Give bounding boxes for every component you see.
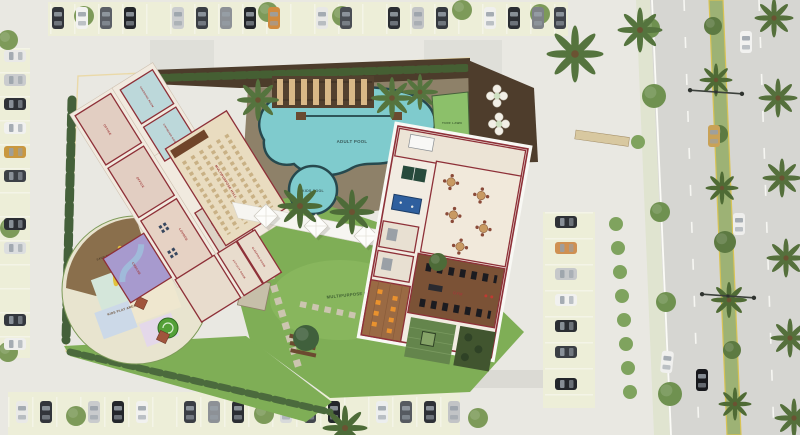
parked-car bbox=[76, 7, 88, 29]
palm-tree-icon bbox=[711, 282, 747, 318]
shrub-icon bbox=[631, 135, 645, 149]
tree-icon bbox=[658, 382, 682, 406]
shrub-icon bbox=[613, 265, 627, 279]
parked-car bbox=[4, 98, 26, 110]
parked-car bbox=[136, 401, 148, 423]
parked-car bbox=[124, 7, 136, 29]
parked-car bbox=[4, 314, 26, 326]
site-master-plan: MULTIPURPOSE LAWN ADULT POOL KIDS POOL T… bbox=[0, 0, 800, 435]
pergola bbox=[272, 76, 374, 108]
shrub-icon bbox=[623, 385, 637, 399]
parked-car bbox=[508, 7, 520, 29]
parked-car bbox=[555, 242, 577, 254]
parked-car bbox=[184, 401, 196, 423]
fixture bbox=[386, 228, 398, 242]
palm-tree-icon bbox=[719, 388, 752, 421]
tree-icon bbox=[723, 341, 741, 359]
palm-tree-icon bbox=[330, 190, 375, 235]
shrub-icon bbox=[611, 241, 625, 255]
parked-car bbox=[532, 7, 544, 29]
tree-icon bbox=[642, 84, 666, 108]
tree-icon bbox=[66, 406, 86, 426]
parked-car bbox=[4, 170, 26, 182]
palm-tree-icon bbox=[755, 0, 794, 38]
parked-car bbox=[16, 401, 28, 423]
tree-icon bbox=[452, 0, 472, 20]
parked-car bbox=[244, 7, 256, 29]
palm-tree-icon bbox=[371, 77, 413, 119]
parked-car bbox=[232, 401, 244, 423]
parked-car bbox=[340, 7, 352, 29]
parked-car bbox=[316, 7, 328, 29]
parked-car bbox=[208, 401, 220, 423]
parked-car bbox=[555, 320, 577, 332]
shrub-icon bbox=[619, 337, 633, 351]
parked-car bbox=[555, 378, 577, 390]
road-car bbox=[696, 369, 708, 391]
palm-tree-icon bbox=[547, 25, 604, 82]
parked-car bbox=[4, 122, 26, 134]
skylight bbox=[420, 331, 435, 346]
parked-car bbox=[555, 294, 577, 306]
tree-icon bbox=[714, 231, 736, 253]
parked-car bbox=[400, 401, 412, 423]
palm-tree-icon bbox=[278, 184, 323, 229]
parked-car bbox=[412, 7, 424, 29]
parked-car bbox=[448, 401, 460, 423]
palm-tree-icon bbox=[763, 159, 800, 198]
parked-car bbox=[555, 346, 577, 358]
palm-tree-icon bbox=[706, 172, 739, 205]
parked-car bbox=[220, 7, 232, 29]
parking-west bbox=[0, 30, 30, 362]
parked-car bbox=[376, 401, 388, 423]
utility-room bbox=[379, 221, 419, 253]
parked-car bbox=[268, 7, 280, 29]
parked-car bbox=[52, 7, 64, 29]
shrub-icon bbox=[609, 217, 623, 231]
parked-car bbox=[554, 7, 566, 29]
palm-tree-icon bbox=[759, 79, 798, 118]
tree-icon bbox=[429, 253, 447, 271]
parked-car bbox=[88, 401, 100, 423]
parked-car bbox=[424, 401, 436, 423]
parked-car bbox=[172, 7, 184, 29]
parked-car bbox=[4, 218, 26, 230]
cafe-area bbox=[420, 161, 521, 267]
parked-car bbox=[555, 216, 577, 228]
tree-icon bbox=[650, 202, 670, 222]
tree-icon bbox=[704, 17, 722, 35]
parked-car bbox=[436, 7, 448, 29]
parked-car bbox=[555, 268, 577, 280]
parked-car bbox=[4, 338, 26, 350]
pool-planter bbox=[296, 112, 306, 120]
turf-lawn-label: TURF LAWN bbox=[442, 121, 462, 125]
shrub-icon bbox=[615, 289, 629, 303]
site-plan-canvas: MULTIPURPOSE LAWN ADULT POOL KIDS POOL T… bbox=[0, 0, 800, 435]
parked-car bbox=[40, 401, 52, 423]
palm-tree-icon bbox=[402, 74, 438, 110]
palm-tree-icon bbox=[618, 8, 663, 53]
parked-car bbox=[100, 7, 112, 29]
parked-car bbox=[484, 7, 496, 29]
adult-pool-label: ADULT POOL bbox=[337, 139, 368, 144]
parking-strip bbox=[0, 48, 30, 358]
parking-north bbox=[48, 0, 568, 36]
road-car bbox=[740, 31, 752, 53]
tree-icon bbox=[293, 325, 319, 351]
parked-car bbox=[388, 7, 400, 29]
road-car bbox=[733, 213, 745, 235]
parked-car bbox=[4, 50, 26, 62]
parked-car bbox=[112, 401, 124, 423]
road-car bbox=[708, 125, 720, 147]
parked-car bbox=[4, 146, 26, 158]
shrub-icon bbox=[617, 313, 631, 327]
tree-icon bbox=[656, 292, 676, 312]
tree-icon bbox=[468, 408, 488, 428]
parked-car bbox=[196, 7, 208, 29]
shrub-icon bbox=[621, 361, 635, 375]
fixture bbox=[381, 257, 393, 271]
palm-tree-icon bbox=[237, 79, 279, 121]
utility-room bbox=[374, 250, 414, 282]
parked-car bbox=[4, 74, 26, 86]
parked-car bbox=[4, 242, 26, 254]
road-car bbox=[660, 350, 674, 373]
